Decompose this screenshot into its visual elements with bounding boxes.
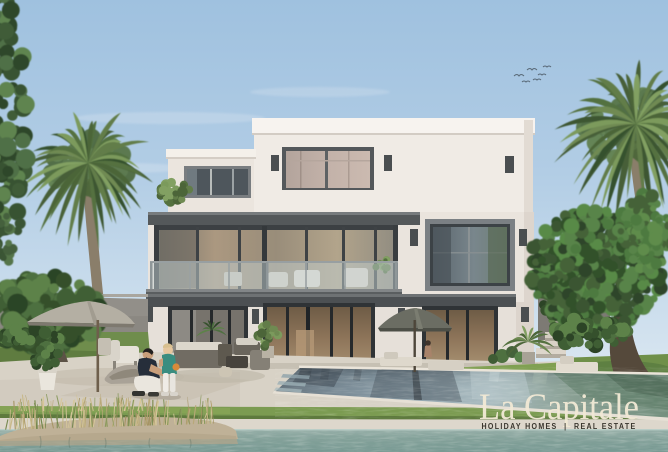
svg-text:HOLIDAY HOMES | REAL ESTATE: HOLIDAY HOMES | REAL ESTATE [482,422,637,431]
